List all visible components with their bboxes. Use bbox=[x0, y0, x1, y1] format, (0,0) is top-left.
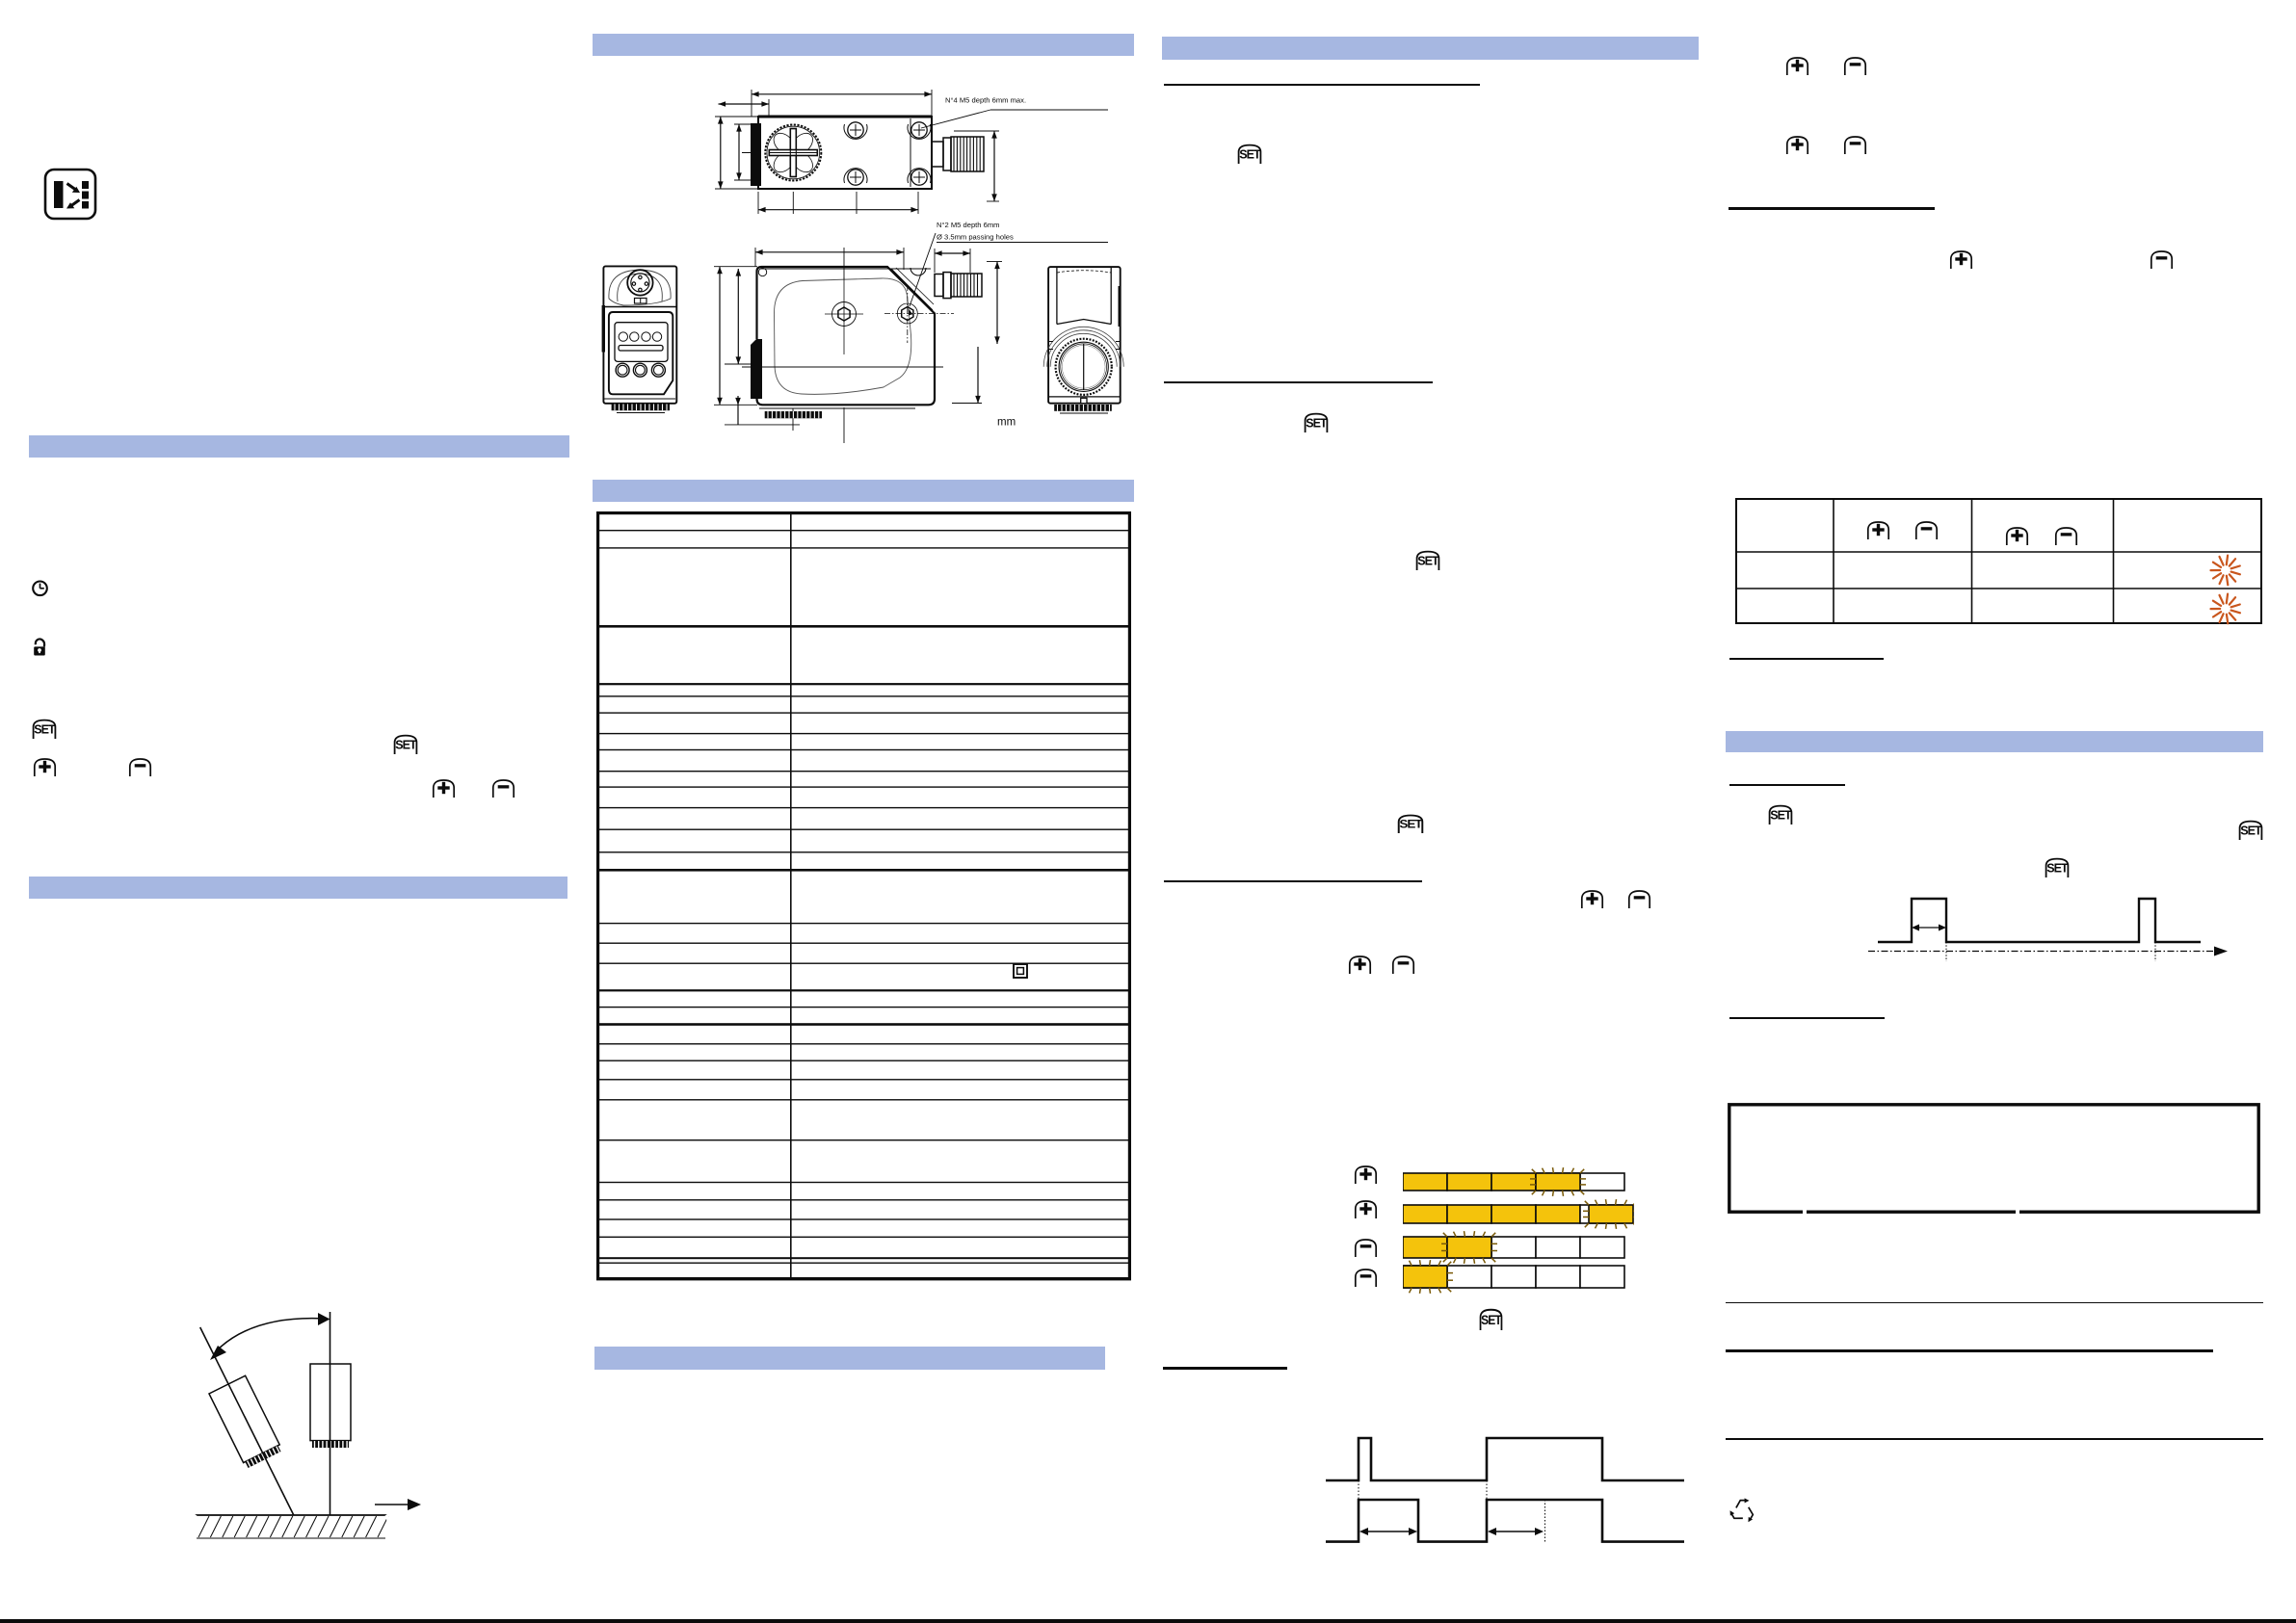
svg-text:SET: SET bbox=[2240, 824, 2262, 837]
svg-text:SET: SET bbox=[2046, 861, 2069, 875]
svg-text:SET: SET bbox=[1417, 554, 1439, 567]
svg-text:SET: SET bbox=[1399, 818, 1422, 830]
svg-text:SET: SET bbox=[1481, 1312, 1502, 1327]
svg-text:SET: SET bbox=[1770, 808, 1792, 822]
svg-text:mm: mm bbox=[997, 417, 1016, 429]
svg-text:Ø 3.5mm passing holes: Ø 3.5mm passing holes bbox=[937, 233, 1014, 242]
svg-text:SET: SET bbox=[1306, 416, 1328, 430]
svg-text:N°4 M5 depth 6mm max.: N°4 M5 depth 6mm max. bbox=[945, 96, 1026, 105]
svg-text:SET: SET bbox=[1239, 147, 1261, 161]
svg-text:N°2 M5 depth 6mm: N°2 M5 depth 6mm bbox=[937, 221, 1000, 229]
svg-text:SET: SET bbox=[395, 738, 417, 751]
svg-text:SET: SET bbox=[34, 722, 56, 736]
